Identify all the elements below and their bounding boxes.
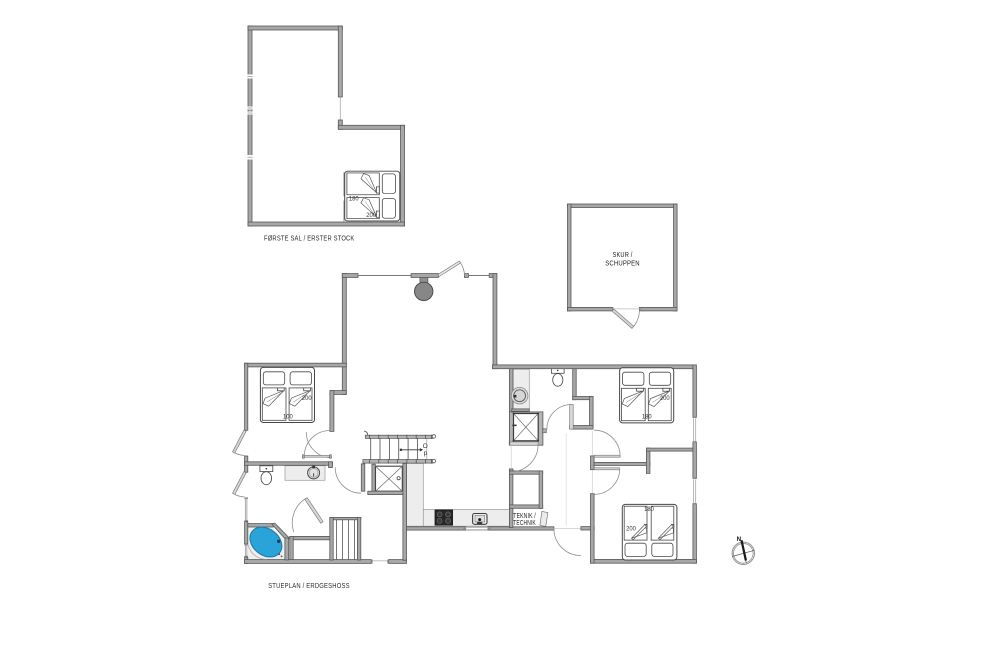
svg-text:180: 180: [644, 506, 654, 513]
svg-text:TECHNIK: TECHNIK: [513, 520, 536, 527]
svg-text:200: 200: [660, 395, 670, 402]
svg-text:200: 200: [366, 212, 376, 219]
svg-text:O: O: [423, 443, 428, 450]
svg-text:TEKNIK /: TEKNIK /: [513, 513, 536, 520]
svg-text:p: p: [424, 450, 428, 457]
svg-text:SKUR /: SKUR /: [613, 252, 633, 259]
svg-text:SCHUPPEN: SCHUPPEN: [605, 260, 640, 267]
svg-text:STUEPLAN / ERDGESHOSS: STUEPLAN / ERDGESHOSS: [268, 581, 350, 590]
svg-text:180: 180: [349, 195, 359, 202]
svg-text:200: 200: [626, 526, 636, 533]
svg-text:FØRSTE SAL / ERSTER STOCK: FØRSTE SAL / ERSTER STOCK: [264, 234, 355, 243]
svg-text:100: 100: [283, 413, 293, 420]
svg-text:N: N: [737, 536, 742, 543]
svg-text:180: 180: [642, 414, 652, 421]
svg-text:200: 200: [302, 395, 312, 402]
